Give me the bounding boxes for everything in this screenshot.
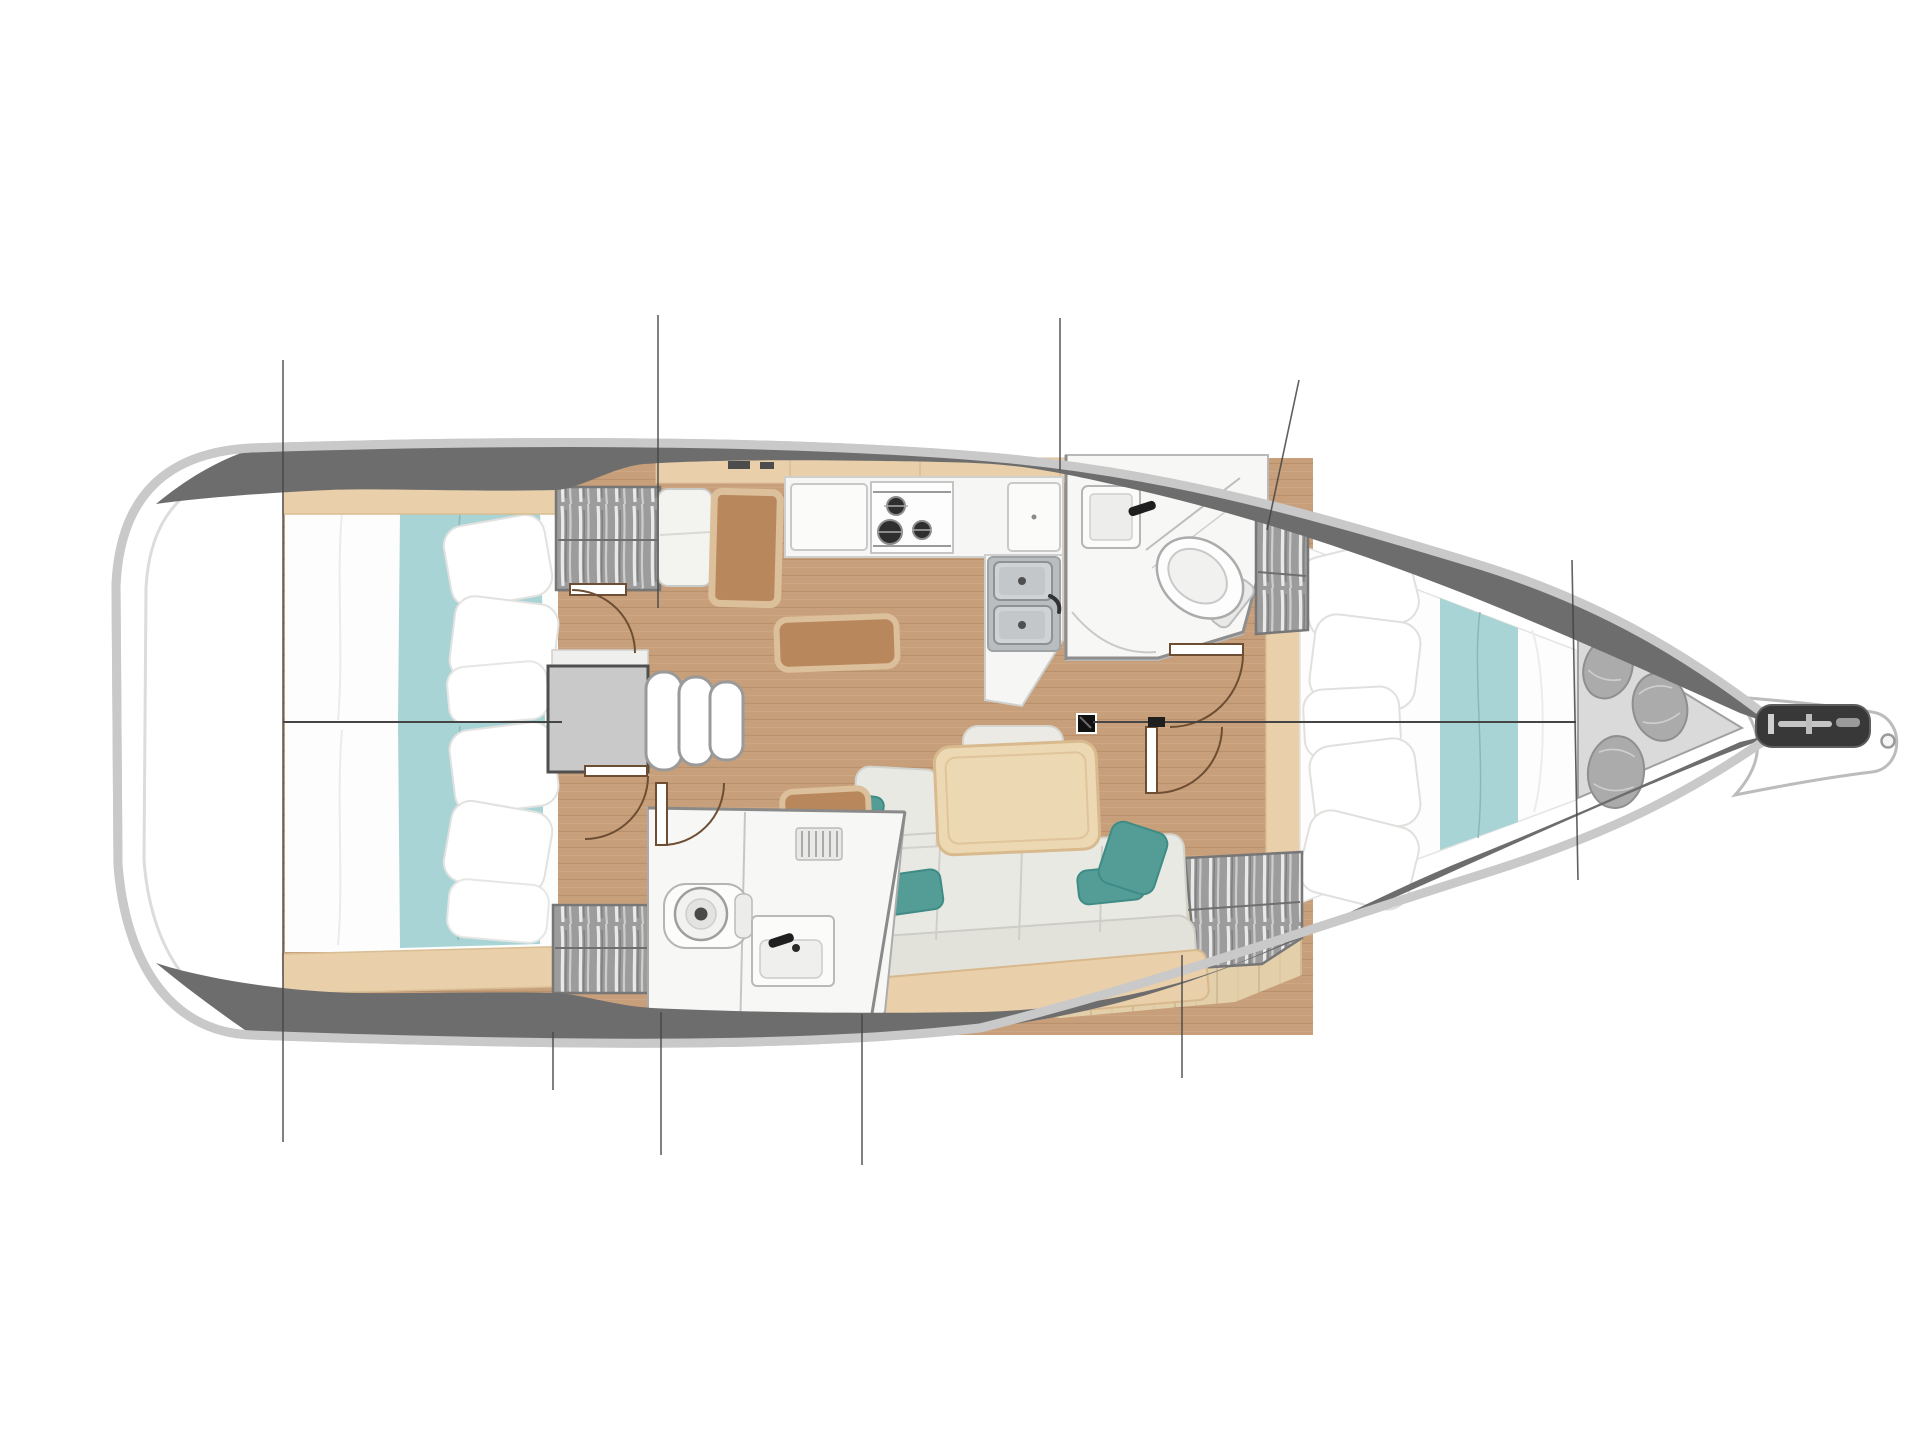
anchor-cross xyxy=(1806,714,1812,734)
head-washbasin xyxy=(752,916,834,986)
step xyxy=(710,682,743,760)
anchor-fluke xyxy=(1836,718,1860,727)
anchor-shank xyxy=(1778,721,1832,727)
stairs-landing xyxy=(548,666,648,772)
storage-bench xyxy=(776,616,898,670)
footboard-trim xyxy=(283,946,586,994)
companionway-steps xyxy=(646,672,743,770)
hatch-hinge xyxy=(728,461,750,469)
hatch-hinge xyxy=(760,462,774,469)
anchor-cross xyxy=(1768,714,1774,734)
nav-seat xyxy=(658,489,712,586)
door-hinge-post xyxy=(1148,717,1165,727)
step xyxy=(679,677,713,765)
yacht-floor-plan xyxy=(0,0,1920,1440)
mast-step xyxy=(1077,714,1096,733)
dining-table xyxy=(934,741,1101,856)
floor-plan-image xyxy=(0,0,1920,1440)
bow-ring xyxy=(1882,735,1895,748)
chart-table xyxy=(712,491,781,605)
locker-door xyxy=(791,484,867,550)
pillow xyxy=(446,878,551,944)
hanging-locker-aft-upper xyxy=(556,487,660,590)
pillow xyxy=(441,512,556,610)
aft-head xyxy=(648,808,905,1038)
vent-grille xyxy=(796,828,842,860)
aft-cabin-lower xyxy=(283,720,586,994)
aft-cabin-upper xyxy=(283,484,569,726)
head-toilet xyxy=(664,884,752,948)
door-knob xyxy=(1032,515,1037,520)
basin-inner xyxy=(1090,494,1132,540)
step xyxy=(646,672,682,770)
pillow xyxy=(446,660,551,726)
